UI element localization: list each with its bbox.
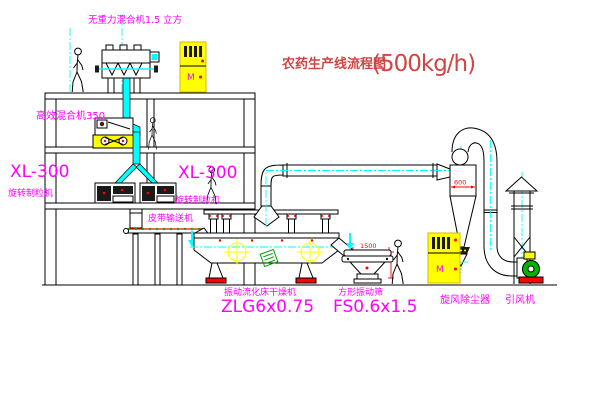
person-top-floor xyxy=(72,48,83,92)
cyclone-label: 旋风除尘器 xyxy=(440,293,490,306)
dryer-model-label: ZLG6x0.75 xyxy=(221,297,314,317)
person-ground xyxy=(392,240,403,284)
granulator-right-name: 旋转制粒机 xyxy=(175,194,220,206)
cad-canvas: M xyxy=(0,0,600,403)
induced-draft-fan xyxy=(517,252,543,283)
granulator-discharge-duct xyxy=(130,209,142,228)
granulator-right-model: XL-300 xyxy=(178,163,237,183)
cyclone-diameter-dim: 600 xyxy=(454,179,466,187)
high-efficiency-mixer-label: 高效混合机350 xyxy=(36,109,105,122)
control-cabinet-right: M xyxy=(428,233,460,283)
square-vibrating-sieve: 1500 xyxy=(342,233,394,283)
cabinet-top-label: M xyxy=(187,73,195,83)
process-flow-drawing: M xyxy=(0,0,600,403)
granulator-left-name: 旋转制粒机 xyxy=(8,187,53,199)
drawing-title: 农药生产线流程图 xyxy=(281,56,386,72)
cabinet-right-label: M xyxy=(436,265,444,275)
granulator-right xyxy=(140,183,176,203)
dryer-exhaust-duct xyxy=(254,163,455,226)
drawing-capacity: (500kg/h) xyxy=(372,51,475,77)
sieve-width-dim: 1500 xyxy=(360,242,377,250)
granulator-left xyxy=(95,183,135,203)
granulator-left-model: XL-300 xyxy=(10,162,69,182)
belt-conveyor-label: 皮带输送机 xyxy=(148,212,193,224)
sieve-model-label: FS0.6x1.5 xyxy=(333,297,417,317)
control-cabinet-top: M xyxy=(180,42,206,92)
fan-label: 引风机 xyxy=(505,293,535,306)
belt-conveyor xyxy=(124,228,206,285)
gravity-mixer-label: 无重力混合机1.5 立方 xyxy=(88,14,182,26)
